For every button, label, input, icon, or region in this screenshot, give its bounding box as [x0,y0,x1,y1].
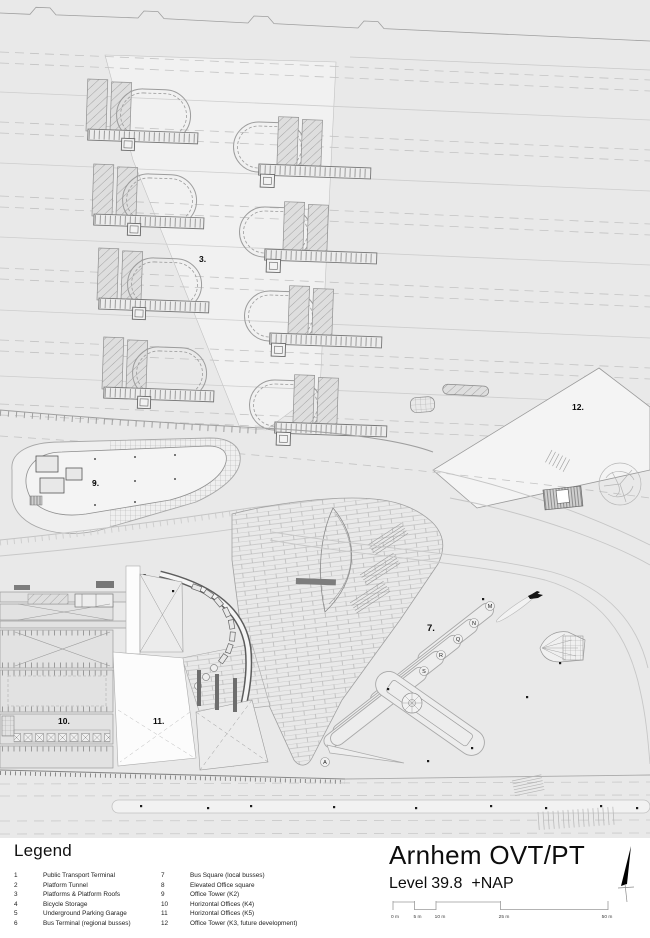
legend-item: 12Office Tower (K3, future development) [161,920,297,930]
legend-item: 1Public Transport Terminal [14,872,131,882]
legend-item: 9Office Tower (K2) [161,891,297,901]
legend-item: 7Bus Square (local busses) [161,872,297,882]
legend-item: 8Elevated Office square [161,882,297,892]
level-value: 39.8 [431,875,462,892]
plan-label-7: 7. [427,623,435,634]
bus-stop-m: M [488,604,493,610]
legend-heading: Legend [14,841,72,861]
bus-stop-s: S [422,669,426,675]
north-arrow-icon [605,838,647,910]
legend-item: 6Bus Terminal (regional busses) [14,920,131,930]
scale-tick-50: 50 m [602,914,613,920]
scale-bar: 0 m 5 m 10 m 25 m 50 m [391,898,615,926]
legend-item: 5Underground Parking Garage [14,910,131,920]
plan-label-11: 11. [153,716,164,726]
underpass-entry [543,486,583,510]
legend-item: 4Bicycle Storage [14,901,131,911]
plan-label-10: 10. [58,716,70,726]
legend-item: 11Horizontal Offices (K5) [161,910,297,920]
plan-sheet: 12. 3. [0,0,650,938]
datum-label: +NAP [471,875,513,892]
project-title: Arnhem OVT/PT [389,840,585,871]
plan-label-9: 9. [92,478,99,488]
legend-item: 2Platform Tunnel [14,882,131,892]
scale-tick-0: 0 m [391,914,399,920]
legend-item: 10Horizontal Offices (K4) [161,901,297,911]
bus-stop-n: N [472,621,476,627]
scale-tick-5: 5 m [414,914,422,920]
scale-tick-10: 10 m [435,914,446,920]
bus-stop-a: A [323,760,327,766]
level-line: Level39.8+NAP [389,875,585,893]
bicycle-shed [410,396,435,413]
plan-label-12: 12. [572,402,584,412]
legend-item: 3Platforms & Platform Roofs [14,891,131,901]
legend: Legend [14,841,72,861]
bus-stop-q: Q [456,637,461,643]
plan-label-3: 3. [199,254,206,264]
title-block: Arnhem OVT/PT Level39.8+NAP [389,840,585,893]
site-plan-drawing: 12. 3. [0,0,650,838]
level-label: Level [389,875,427,892]
service-vehicle [442,384,488,396]
scale-tick-25: 25 m [499,914,510,920]
bus-stop-r: R [439,653,443,659]
